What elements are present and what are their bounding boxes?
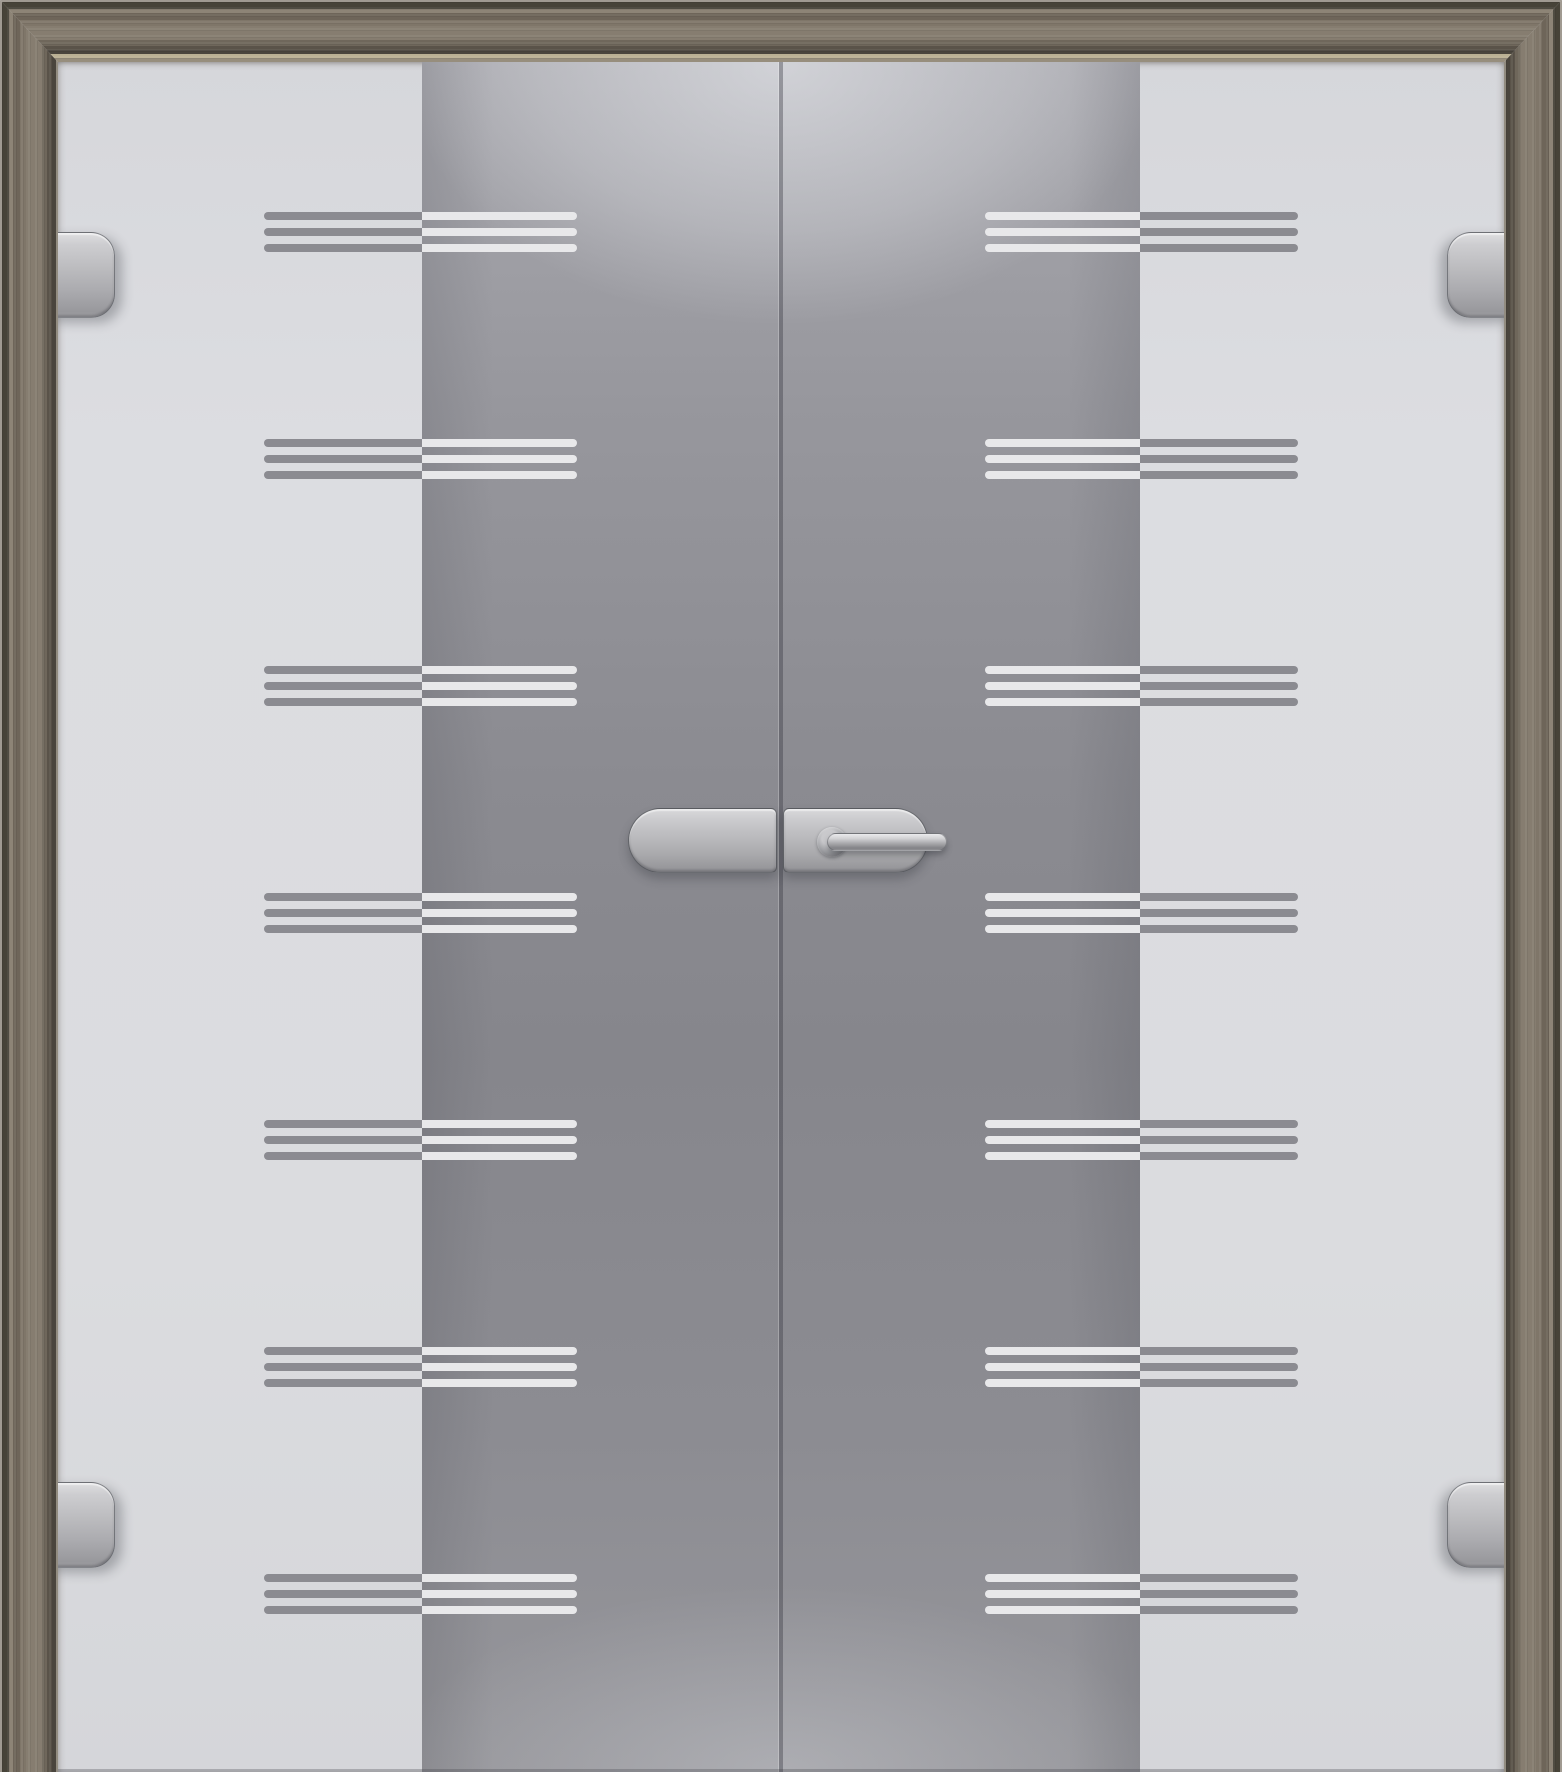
stripe-line <box>985 455 1298 463</box>
stripe-group-right <box>985 1347 1298 1387</box>
stripe-line <box>264 925 577 933</box>
stripe-group-left <box>264 212 577 252</box>
stripe-line <box>985 682 1298 690</box>
stripe-line <box>264 455 577 463</box>
stripe-line <box>264 893 577 901</box>
door-product-photo <box>0 0 1562 1772</box>
stripe-line <box>985 925 1298 933</box>
stripe-group-left <box>264 666 577 706</box>
stripe-group-right <box>985 212 1298 252</box>
stripe-line <box>985 1606 1298 1614</box>
stripe-line <box>985 1574 1298 1582</box>
stripe-line <box>985 1590 1298 1598</box>
stripe-line <box>264 698 577 706</box>
stripe-line <box>264 1136 577 1144</box>
stripe-group-right <box>985 1574 1298 1614</box>
stripe-line <box>264 1574 577 1582</box>
frame-top-head <box>0 0 1562 62</box>
stripe-line <box>985 1379 1298 1387</box>
stripe-line <box>985 228 1298 236</box>
stripe-group-right <box>985 1120 1298 1160</box>
stripe-group-right <box>985 666 1298 706</box>
door-seam <box>778 62 783 1772</box>
stripe-line <box>264 1347 577 1355</box>
stripe-group-left <box>264 1347 577 1387</box>
stripe-line <box>264 1590 577 1598</box>
stripe-line <box>985 1363 1298 1371</box>
stripe-line <box>264 682 577 690</box>
stripe-line <box>264 909 577 917</box>
stripe-group-right <box>985 893 1298 933</box>
stripe-line <box>985 439 1298 447</box>
stripe-line <box>985 1136 1298 1144</box>
stripe-line <box>985 666 1298 674</box>
stripe-line <box>985 212 1298 220</box>
stripe-group-right <box>985 439 1298 479</box>
stripe-line <box>264 666 577 674</box>
stripe-group-left <box>264 439 577 479</box>
stripe-line <box>985 244 1298 252</box>
stripe-group-left <box>264 893 577 933</box>
stripe-line <box>985 1120 1298 1128</box>
stripe-line <box>264 439 577 447</box>
stripe-line <box>264 471 577 479</box>
stripe-line <box>264 228 577 236</box>
lock-plate-left <box>628 808 777 873</box>
stripe-group-left <box>264 1120 577 1160</box>
frame-right-jamb <box>1504 0 1562 1772</box>
lever-handle <box>827 833 947 851</box>
stripe-line <box>264 1152 577 1160</box>
glass-area <box>58 62 1504 1772</box>
stripe-line <box>985 1152 1298 1160</box>
stripe-group-left <box>264 1574 577 1614</box>
stripe-line <box>264 1120 577 1128</box>
stripe-line <box>264 1606 577 1614</box>
stripe-line <box>985 909 1298 917</box>
stripe-line <box>985 1347 1298 1355</box>
stripe-line <box>985 698 1298 706</box>
stripe-line <box>264 1379 577 1387</box>
stripe-line <box>264 212 577 220</box>
stripe-line <box>985 471 1298 479</box>
stripe-line <box>264 1363 577 1371</box>
stripe-line <box>264 244 577 252</box>
frame-left-jamb <box>0 0 58 1772</box>
stripe-line <box>985 893 1298 901</box>
